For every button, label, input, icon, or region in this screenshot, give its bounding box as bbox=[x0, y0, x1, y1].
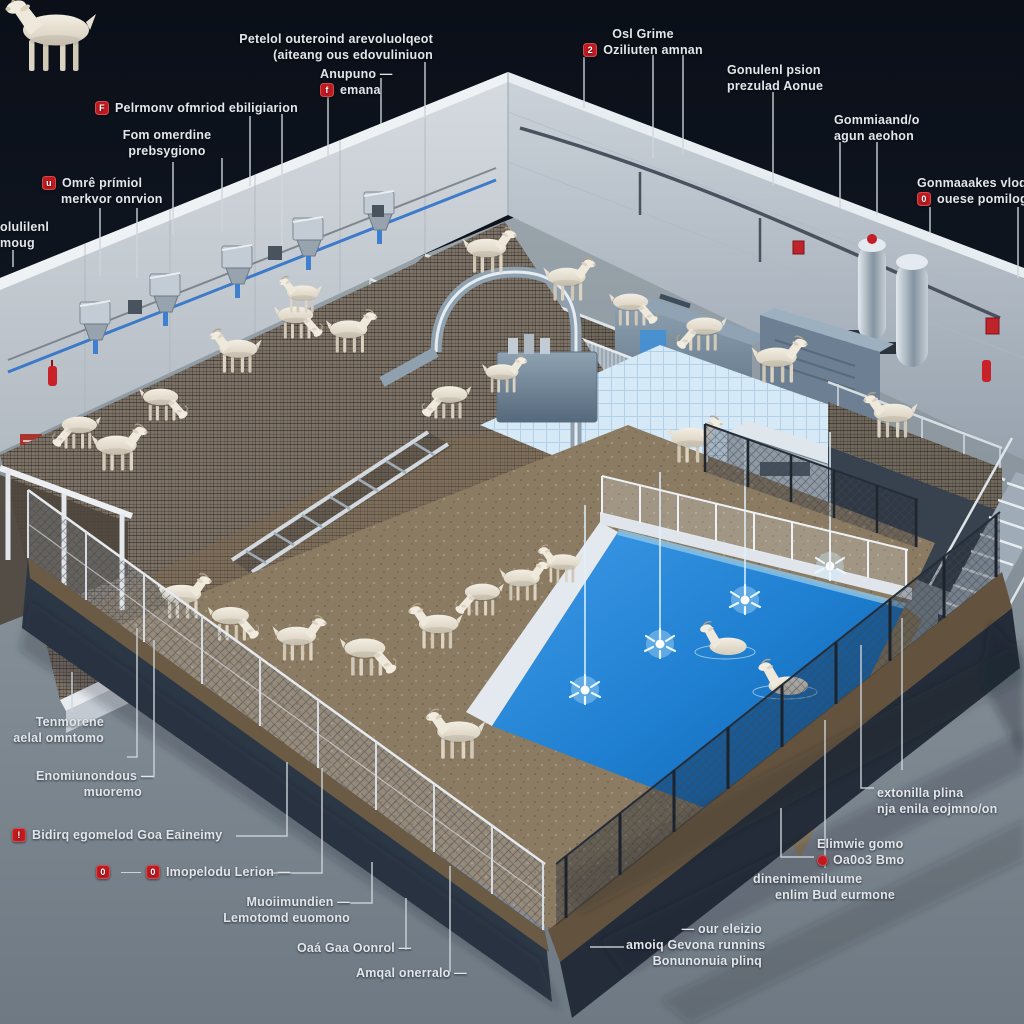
callout-imopelodu: 0 0 Imopelodu Lerion — bbox=[96, 864, 290, 880]
callout-gonmaaakes: Gonmaaakes vlodilu 0ouese pomilog bbox=[917, 175, 1024, 207]
marker-icon: u bbox=[42, 176, 56, 190]
marker-icon: 0 bbox=[96, 865, 110, 879]
callout-dinenim: dinenimemiluume enlim Bud eurmone bbox=[753, 871, 895, 903]
callout-osl-grime: Osl Grime 2Oziliuten amnan bbox=[588, 26, 698, 58]
marker-icon: 2 bbox=[583, 43, 597, 57]
callout-enomiunondous: Enomiunondous — muoremo bbox=[36, 768, 142, 800]
callout-pelrmonv: FPelrmonv ofmriod ebiligiarion bbox=[95, 100, 298, 116]
callout-anupuno: Anupuno — femana bbox=[320, 66, 393, 98]
marker-icon: F bbox=[95, 101, 109, 115]
marker-dot-icon bbox=[817, 855, 828, 866]
callout-bidirq: !Bidirq egomelod Goa Eaineimy bbox=[12, 827, 222, 843]
callout-olulilenl: olulilenl moug bbox=[0, 219, 49, 251]
callout-tenmorene: Tenmorene aelal omntomo bbox=[0, 714, 104, 746]
marker-icon: ! bbox=[12, 828, 26, 842]
fire-extinguisher-right bbox=[982, 360, 991, 382]
callout-muoiimundien: Muoiimundien — Lemotomd euomono bbox=[208, 894, 350, 926]
callout-elimwie: Elimwie gomo Oa0o3 Bmo bbox=[817, 836, 904, 868]
marker-icon: 0 bbox=[146, 865, 160, 879]
goat-facility-diagram: Petelol outeroind arevoluolqeot (aiteang… bbox=[0, 0, 1024, 1024]
callout-oaa-gaa: Oaá Gaa Oonrol — bbox=[297, 940, 411, 956]
callout-omre-primiol: uOmrê prímiol merkvor onrvion bbox=[42, 175, 163, 207]
callout-amqal: Amqal onerralo — bbox=[356, 965, 467, 981]
marker-icon: 0 bbox=[917, 192, 931, 206]
callout-extonilla: extonilla plina nja enila eojmno/on bbox=[877, 785, 997, 817]
callout-top-center: Petelol outeroind arevoluolqeot (aiteang… bbox=[225, 31, 433, 63]
callout-our-eleizio: — our eleizio amoiq Gevona runnins Bonun… bbox=[626, 921, 762, 969]
dash-connector bbox=[121, 872, 141, 873]
callout-gonulenl: Gonulenl psion prezulad Aonue bbox=[727, 62, 823, 94]
callout-fom-omerdine: Fom omerdine prebsygiono bbox=[116, 127, 218, 159]
callout-gommiaand: Gommiaand/o agun aeohon bbox=[834, 112, 920, 144]
marker-icon: f bbox=[320, 83, 334, 97]
